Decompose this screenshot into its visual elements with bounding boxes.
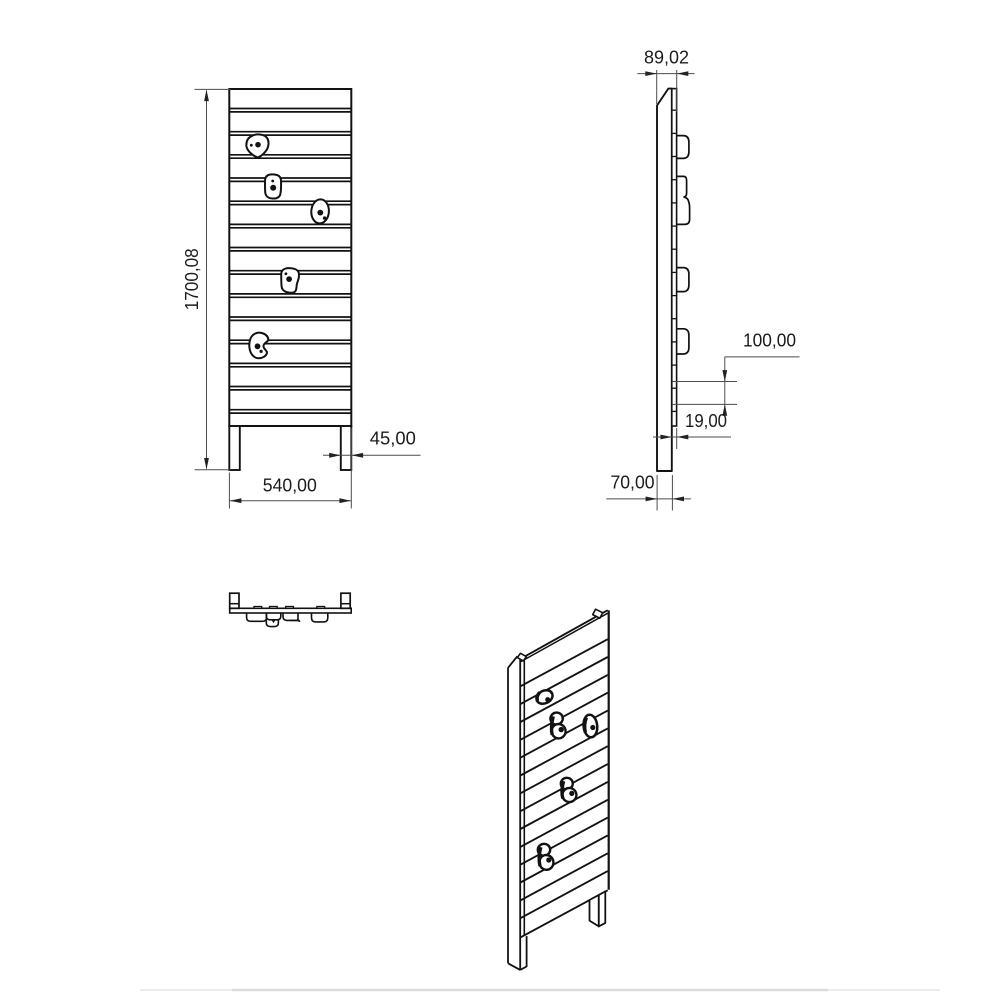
svg-text:19,00: 19,00 (685, 410, 727, 431)
svg-text:89,02: 89,02 (644, 47, 689, 68)
svg-text:540,00: 540,00 (263, 475, 317, 496)
svg-text:1700,08: 1700,08 (181, 248, 202, 310)
svg-text:45,00: 45,00 (370, 428, 416, 449)
svg-text:70,00: 70,00 (611, 472, 655, 493)
svg-text:100,00: 100,00 (743, 330, 796, 351)
